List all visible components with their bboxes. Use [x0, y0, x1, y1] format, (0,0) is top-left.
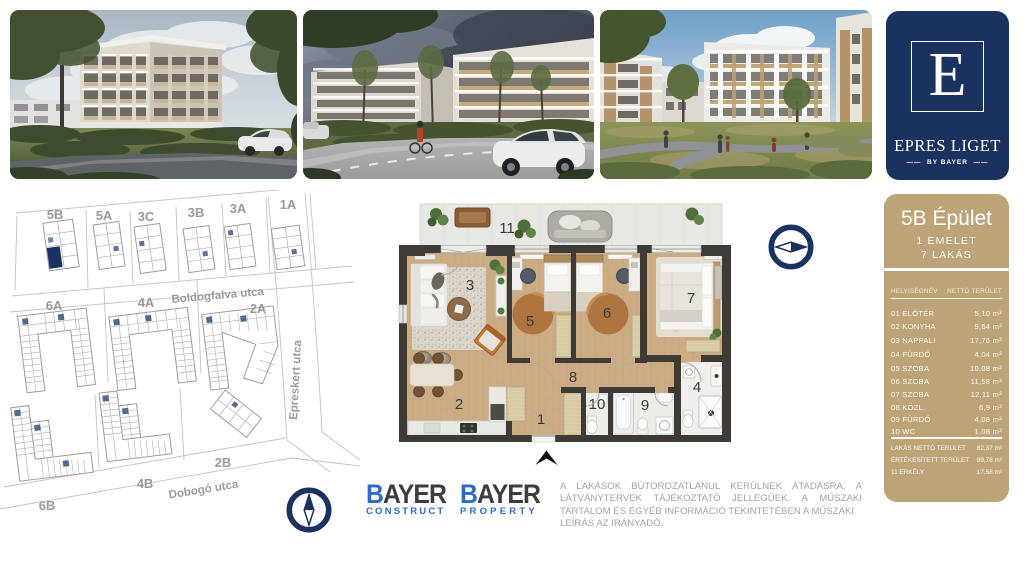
svg-text:Epreskert utca: Epreskert utca [288, 339, 304, 420]
svg-text:5B: 5B [47, 207, 64, 222]
svg-text:6B: 6B [39, 498, 56, 513]
svg-text:3B: 3B [188, 205, 205, 220]
svg-text:5: 5 [526, 313, 534, 330]
svg-text:4: 4 [693, 379, 701, 396]
svg-text:2A: 2A [250, 301, 267, 316]
svg-text:3A: 3A [230, 201, 247, 216]
svg-text:4A: 4A [138, 295, 155, 310]
svg-text:2: 2 [455, 396, 463, 413]
svg-text:11: 11 [499, 220, 515, 237]
svg-text:5A: 5A [96, 208, 113, 223]
svg-text:4B: 4B [137, 476, 154, 491]
svg-text:1A: 1A [280, 197, 297, 212]
svg-text:Dobogó utca: Dobogó utca [168, 479, 240, 502]
svg-text:3C: 3C [138, 209, 155, 224]
svg-text:7: 7 [687, 290, 695, 307]
svg-text:8: 8 [569, 369, 577, 386]
svg-text:6A: 6A [46, 298, 63, 313]
svg-text:2B: 2B [215, 455, 232, 470]
svg-text:3: 3 [466, 277, 474, 294]
svg-text:9: 9 [641, 397, 649, 414]
svg-text:6: 6 [603, 305, 611, 322]
